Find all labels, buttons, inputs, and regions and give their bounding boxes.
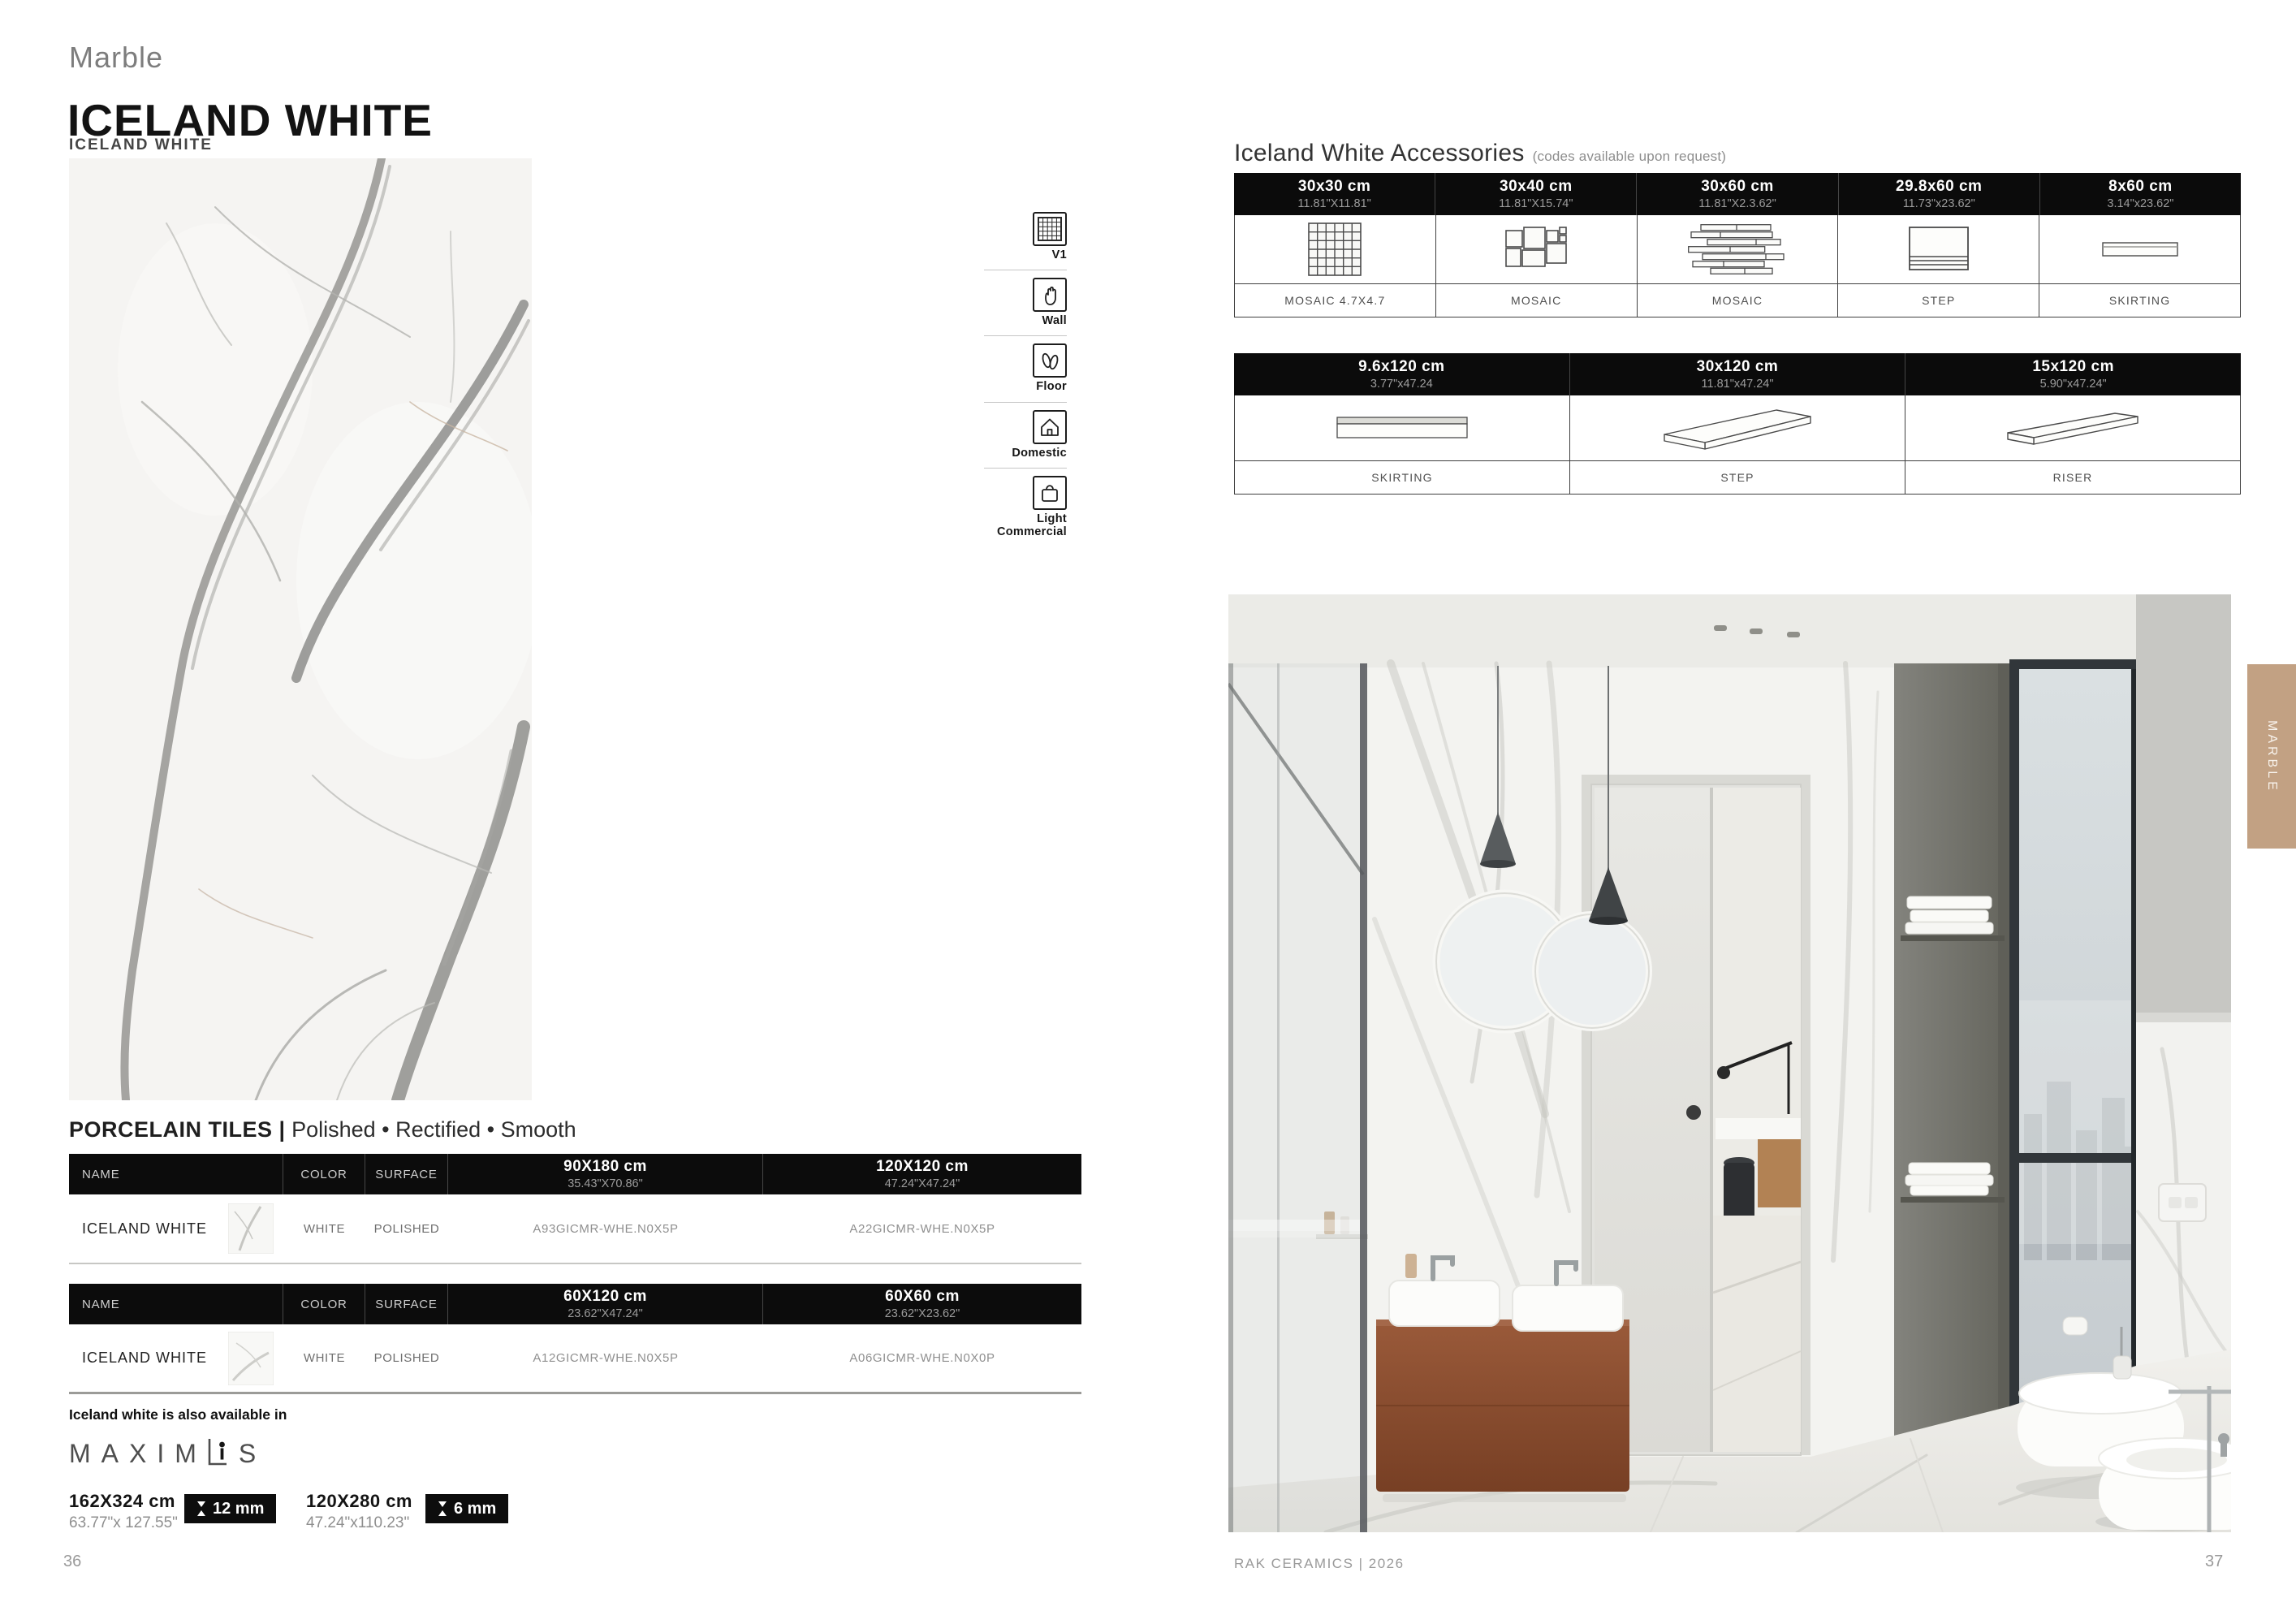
accessories-title: Iceland White Accessories(codes availabl… [1234,140,1726,167]
size-cm: 60X60 cm [885,1288,960,1306]
slab-image-caption: ICELAND WHITE [69,136,213,154]
tile-code: A12GICMR-WHE.N0X5P [448,1351,763,1365]
tile-code: A06GICMR-WHE.N0X0P [763,1351,1081,1365]
acc-size-col: 30x40 cm11.81"X15.74" [1435,173,1637,215]
header-surface: SURFACE [365,1284,448,1324]
marble-slab-image [69,158,532,1100]
acc-label: SKIRTING [1235,461,1570,494]
thickness-value: 6 mm [454,1500,496,1518]
header-size-1: 90X180 cm35.43"X70.86" [448,1154,763,1194]
header-name: NAME [69,1284,283,1324]
usage-group-light-commercial: Light Commercial [984,468,1067,546]
acc-size-col: 8x60 cm3.14"x23.62" [2040,173,2241,215]
tile-name: ICELAND WHITE [82,1350,207,1367]
footprints-icon [1033,343,1067,378]
header-name: NAME [69,1154,283,1194]
thickness-icon [196,1501,206,1517]
acc-size: 30x120 cm [1697,358,1779,376]
accessories-table-1: 30x30 cm11.81"X11.81" 30x40 cm11.81"X15.… [1234,173,2241,317]
tile-table-60x120: NAME COLOR SURFACE 60X120 cm23.62"X47.24… [69,1284,1081,1394]
marble-side-tab: MARBLE [2247,664,2296,849]
usage-group-v1: V1 [984,205,1067,270]
header-color: COLOR [283,1284,365,1324]
acc-inch: 11.81"X15.74" [1499,197,1573,210]
page-number-right: 37 [2205,1553,2223,1571]
maximus-logo: MAXIMS [69,1437,266,1466]
footer-brand: RAK CERAMICS | 2026 [1234,1556,1405,1572]
tile-surface: POLISHED [365,1222,448,1236]
acc-inch: 3.77"x47.24 [1370,378,1433,391]
acc-size: 8x60 cm [2108,178,2173,196]
page-number-left: 36 [63,1553,81,1571]
accessories-table-2: 9.6x120 cm3.77"x47.24 30x120 cm11.81"x47… [1234,353,2241,495]
heading-bold: PORCELAIN TILES | [69,1117,286,1142]
acc-label: STEP [1838,284,2039,317]
acc-inch: 5.90"x47.24" [2040,378,2107,391]
table-row: ICELAND WHITE WHITE POLISHED A93GICMR-WH… [69,1194,1081,1264]
step-3d-icon [1570,395,1905,460]
acc-size: 30x60 cm [1701,178,1774,196]
acc-size-col: 15x120 cm5.90"x47.24" [1905,353,2241,395]
thickness-badge-12mm: 12 mm [184,1494,276,1523]
accessories-title-text: Iceland White Accessories [1234,140,1525,166]
slab-size-inch: 63.77"x 127.55" [69,1514,178,1532]
header-size-1: 60X120 cm23.62"X47.24" [448,1284,763,1324]
accessories-labels: SKIRTING STEP RISER [1235,460,2240,494]
acc-label: MOSAIC [1436,284,1638,317]
porcelain-tiles-heading: PORCELAIN TILES | Polished • Rectified •… [69,1117,576,1142]
tile-code: A93GICMR-WHE.N0X5P [448,1222,763,1236]
slab-size-2: 120X280 cm 47.24"x110.23" [306,1491,412,1532]
acc-inch: 3.14"x23.62" [2107,197,2173,210]
tile-code: A22GICMR-WHE.N0X5P [763,1222,1081,1236]
table-row: ICELAND WHITE WHITE POLISHED A12GICMR-WH… [69,1324,1081,1394]
tile-color: WHITE [283,1351,365,1365]
maximus-letters-right: S [239,1440,266,1466]
side-tab-label: MARBLE [2264,720,2279,793]
category-label: Marble [69,41,163,75]
thickness-value: 12 mm [213,1500,264,1518]
acc-size: 30x30 cm [1298,178,1371,196]
skirting-icon [2039,215,2240,283]
step-icon [1838,215,2039,283]
accessories-drawings [1235,215,2240,283]
acc-size: 30x40 cm [1500,178,1573,196]
acc-inch: 11.81"X2.3.62" [1698,197,1776,210]
tile-swatch [228,1332,274,1385]
usage-label: Wall [984,314,1067,327]
slab-size-1: 162X324 cm 63.77"x 127.55" [69,1491,178,1532]
acc-size-col: 30x60 cm11.81"X2.3.62" [1637,173,1838,215]
table-header: NAME COLOR SURFACE 90X180 cm35.43"X70.86… [69,1154,1081,1194]
tile-color: WHITE [283,1222,365,1236]
acc-size: 29.8x60 cm [1896,178,1982,196]
accessories-header: 30x30 cm11.81"X11.81" 30x40 cm11.81"X15.… [1234,173,2241,215]
slab-size-cm: 120X280 cm [306,1491,412,1512]
acc-size-col: 30x120 cm11.81"x47.24" [1570,353,1906,395]
slab-size-inch: 47.24"x110.23" [306,1514,412,1532]
bathroom-photo [1228,594,2231,1532]
thickness-icon [438,1501,447,1517]
usage-label: V1 [984,248,1067,261]
usage-group-wall: Wall [984,270,1067,335]
acc-label: MOSAIC [1638,284,1839,317]
skirting-long-icon [1235,395,1570,460]
header-surface: SURFACE [365,1154,448,1194]
thickness-badge-6mm: 6 mm [425,1494,508,1523]
usage-label: Domestic [984,447,1067,460]
size-cm: 120X120 cm [876,1158,969,1176]
acc-label: RISER [1905,461,2240,494]
also-available-note: Iceland white is also available in [69,1406,287,1423]
heading-finishes: Polished • Rectified • Smooth [286,1117,576,1142]
usage-group-domestic: Domestic [984,402,1067,468]
maximus-letters-left: MAXIM [69,1440,207,1466]
usage-group-floor: Floor [984,335,1067,401]
acc-size-col: 29.8x60 cm11.73"x23.62" [1839,173,2040,215]
usage-label: Light Commercial [984,512,1067,538]
size-inch: 35.43"X70.86" [568,1177,643,1190]
acc-inch: 11.81"x47.24" [1701,378,1773,391]
acc-size-col: 9.6x120 cm3.77"x47.24 [1234,353,1570,395]
header-color: COLOR [283,1154,365,1194]
size-inch: 47.24"X47.24" [885,1177,960,1190]
size-cm: 60X120 cm [563,1288,647,1306]
acc-inch: 11.73"x23.62" [1903,197,1975,210]
slab-size-cm: 162X324 cm [69,1491,178,1512]
table-header: NAME COLOR SURFACE 60X120 cm23.62"X47.24… [69,1284,1081,1324]
grid-icon [1033,212,1067,246]
hand-icon [1033,278,1067,312]
header-size-2: 60X60 cm23.62"X23.62" [763,1284,1081,1324]
mosaic-modular-icon [1436,215,1638,283]
acc-label: STEP [1570,461,1905,494]
acc-label: MOSAIC 4.7X4.7 [1235,284,1436,317]
accessories-labels: MOSAIC 4.7X4.7 MOSAIC MOSAIC STEP SKIRTI… [1235,283,2240,317]
tile-surface: POLISHED [365,1351,448,1365]
mosaic-strips-icon [1638,215,1839,283]
size-cm: 90X180 cm [563,1158,647,1176]
usage-label: Floor [984,380,1067,393]
acc-size-col: 30x30 cm11.81"X11.81" [1234,173,1435,215]
header-size-2: 120X120 cm47.24"X47.24" [763,1154,1081,1194]
tile-table-90x180: NAME COLOR SURFACE 90X180 cm35.43"X70.86… [69,1154,1081,1264]
riser-3d-icon [1905,395,2240,460]
acc-size: 9.6x120 cm [1358,358,1444,376]
tile-swatch [228,1203,274,1254]
acc-label: SKIRTING [2039,284,2240,317]
usage-icon-column: V1 Wall Floor Domestic Light Commercial [984,205,1067,546]
size-inch: 23.62"X47.24" [568,1307,643,1320]
shopping-bag-icon [1033,476,1067,510]
tile-name: ICELAND WHITE [82,1220,207,1237]
maximus-u-person-icon [207,1437,228,1466]
house-icon [1033,410,1067,444]
acc-inch: 11.81"X11.81" [1297,197,1370,210]
accessories-note: (codes available upon request) [1533,149,1726,164]
accessories-drawings [1235,395,2240,460]
acc-size: 15x120 cm [2032,358,2114,376]
mosaic-grid-icon [1235,215,1436,283]
size-inch: 23.62"X23.62" [885,1307,960,1320]
accessories-header: 9.6x120 cm3.77"x47.24 30x120 cm11.81"x47… [1234,353,2241,395]
